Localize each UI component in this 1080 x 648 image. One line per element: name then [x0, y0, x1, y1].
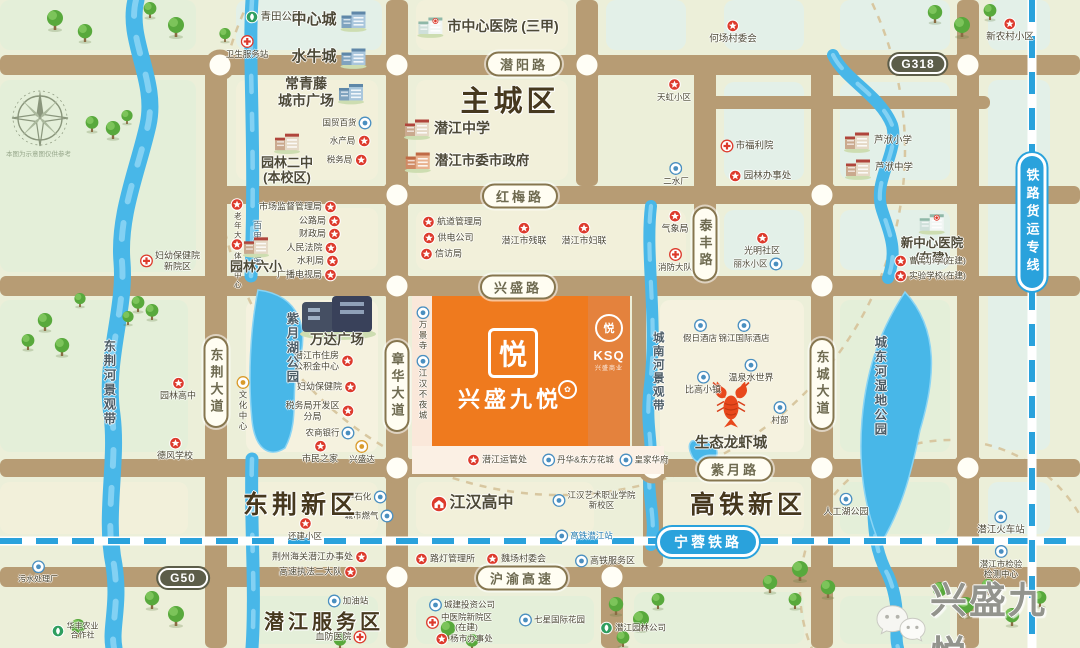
wanda-window	[340, 310, 364, 314]
poi-label-text: 园林办事处	[744, 170, 792, 181]
road-junction	[809, 182, 835, 208]
project-mini-seal-icon: ✿	[558, 380, 577, 399]
poi-label-text: 航道管理局	[437, 217, 482, 228]
poi-label-text: 温泉水世界	[728, 373, 773, 384]
road	[576, 0, 598, 186]
poi-label: 水利局	[297, 255, 339, 268]
poi-star-icon	[313, 440, 326, 453]
poi-label: 潜江园林公司	[600, 622, 666, 635]
poi-label: 园林六小	[230, 234, 282, 274]
poi-label: 潜江市住房公积金中心	[294, 350, 354, 371]
poi-label-text: 比高小镇	[685, 385, 721, 396]
poi-label-text: 城东河湿地公园	[872, 335, 887, 437]
poi-label: 江汉高中	[430, 495, 513, 514]
poi-blue-icon	[994, 510, 1007, 523]
park-icon	[246, 11, 259, 24]
poi-label: 城建投资公司	[429, 599, 495, 612]
park-icon	[600, 622, 613, 635]
map-disclaimer: 本图为示意图仅供参考	[6, 148, 106, 158]
poi-label: 潜江火车站	[977, 510, 1025, 535]
poi-label: 丹华&东方花城	[542, 454, 614, 467]
poi-star-icon	[341, 355, 354, 368]
road-junction	[599, 564, 625, 590]
city-block	[0, 0, 196, 50]
poi-label-text: 江汉不夜城	[418, 369, 428, 422]
school-building-icon	[843, 156, 873, 180]
poi-label-text: 园林六小	[230, 259, 282, 274]
road-junction	[384, 455, 410, 481]
poi-label: 市福利院	[720, 140, 773, 153]
poi-star-icon	[729, 170, 742, 183]
poi-label: 何场村委会	[709, 19, 757, 44]
poi-label-text: 芦洑小学	[874, 135, 912, 146]
poi-yellow-icon	[355, 440, 368, 453]
project-name-label: 兴盛九悦	[458, 382, 562, 414]
poi-star-icon	[354, 154, 367, 167]
poi-label: 芦洑中学	[843, 156, 913, 180]
wechat-icon	[876, 601, 926, 647]
tree-icon	[168, 606, 184, 628]
poi-label-text: 市中心医院 (三甲)	[447, 18, 558, 35]
poi-label: 潜江市妇联	[561, 222, 606, 247]
poi-label: 实验学校(在建)	[894, 270, 966, 283]
poi-label-text: 光明社区	[744, 246, 780, 257]
poi-blue-icon	[575, 555, 588, 568]
city-block	[606, 0, 686, 50]
poi-label-text: 高速执法二大队	[279, 567, 342, 578]
road-junction	[809, 455, 835, 481]
poi-label-text: 潜江园林公司	[615, 623, 666, 633]
poi-label: 园林二中(本校区)	[261, 130, 313, 186]
poi-label-text: 污水处理厂	[18, 574, 58, 583]
poi-label-text: 常青藤城市广场	[278, 75, 334, 108]
poi-star-icon	[357, 135, 370, 148]
road-name-capsule: 章华大道	[385, 340, 410, 432]
poi-label-text: 曹禺小学(在建)	[909, 256, 966, 266]
poi-label-text: 高铁潜江站	[570, 531, 613, 541]
poi-star-icon	[1003, 17, 1016, 30]
poi-label-text: 万景寺	[418, 320, 428, 352]
poi-star-icon	[726, 19, 739, 32]
poi-star-icon	[517, 222, 530, 235]
poi-label-text: 潜江市委市政府	[435, 153, 530, 169]
poi-label-text: 生态龙虾城	[695, 435, 768, 452]
poi-label: 锦江国际酒店	[718, 319, 769, 343]
poi-label-text: 税务局开发区分局	[285, 400, 339, 421]
poi-star-icon	[486, 553, 499, 566]
hospital-building-icon	[415, 14, 445, 38]
district-label: 潜江服务区	[264, 606, 384, 635]
poi-label-text: 皇家华府	[634, 455, 668, 465]
road-name-capsule: 紫月路	[697, 457, 773, 482]
brand-circle-icon: 悦	[595, 314, 623, 342]
poi-label: 光明社区	[744, 232, 780, 257]
poi-label: 江汉不夜城	[417, 355, 430, 422]
poi-label-text: 水牛城	[291, 48, 336, 66]
poi-label-text: 信访局	[435, 249, 462, 260]
poi-label: 比高小镇	[685, 371, 721, 396]
hospital-cross-icon	[720, 140, 733, 153]
poi-label: 税务局	[327, 154, 368, 167]
poi-blue-icon	[693, 319, 706, 332]
poi-star-icon	[171, 377, 184, 390]
poi-label-text: 供电公司	[437, 233, 473, 244]
poi-star-icon	[326, 255, 339, 268]
poi-label: 兴盛达	[349, 440, 375, 464]
poi-blue-icon	[669, 162, 682, 175]
poi-label-text: 假日酒店	[683, 333, 717, 343]
poi-label-text: 高铁服务区	[590, 556, 635, 567]
poi-label: 城东河湿地公园	[872, 335, 887, 437]
school-building-icon	[402, 116, 432, 140]
road-junction	[574, 52, 600, 78]
poi-star-icon	[755, 232, 768, 245]
road-name-capsule: 红梅路	[482, 184, 558, 209]
poi-label: 东荆河景观带	[101, 340, 116, 427]
poi-label: 供电公司	[422, 232, 473, 245]
poi-label: 二水厂	[663, 162, 689, 186]
compass-icon	[8, 86, 72, 155]
poi-label: 水产局	[330, 135, 371, 148]
poi-blue-icon	[744, 359, 757, 372]
government-building-icon	[403, 149, 433, 173]
poi-label-text: 广播电视局	[277, 270, 322, 281]
poi-label-text: 消防大队	[658, 262, 692, 272]
poi-label: 华丰农业合作社	[52, 622, 99, 641]
poi-blue-icon	[552, 494, 565, 507]
poi-star-icon	[324, 269, 337, 282]
poi-star-icon	[342, 405, 355, 418]
poi-label: 信访局	[420, 248, 462, 261]
road-junction	[384, 273, 410, 299]
poi-label: 市中心医院 (三甲)	[415, 14, 558, 38]
poi-label-text: 华丰农业合作社	[67, 622, 99, 641]
poi-label: 潜江市委市政府	[403, 149, 530, 173]
poi-star-icon	[168, 437, 181, 450]
poi-label-text: 市福利院	[735, 140, 773, 151]
poi-label: 中医院新院区(在建)	[426, 612, 492, 632]
building-icon	[336, 80, 366, 104]
poi-label: 皇家华府	[619, 454, 668, 467]
poi-label: 万达广场	[310, 332, 364, 348]
district-label: 主城区	[460, 78, 559, 120]
poi-label: 高铁服务区	[575, 555, 635, 568]
poi-label-text: 东荆河景观带	[101, 340, 116, 427]
poi-blue-icon	[359, 117, 372, 130]
poi-label: 气象局	[661, 210, 688, 235]
poi-star-icon	[344, 381, 357, 394]
poi-label: 新农村小区	[986, 17, 1034, 42]
poi-label-text: 潜江运管处	[482, 455, 527, 466]
poi-label-text: 园林高中	[160, 391, 196, 402]
railway-name-badge: 宁蓉铁路	[657, 527, 759, 557]
poi-label-text: 潜江中学	[434, 120, 490, 137]
poi-star-icon	[328, 215, 341, 228]
railway-freight-label: 铁路货运专线	[1018, 153, 1047, 291]
poi-blue-icon	[417, 355, 430, 368]
brand-sub-label: 兴盛商业	[595, 363, 623, 372]
poi-label-text: 妇幼保健院	[297, 382, 342, 393]
wanda-window	[308, 316, 320, 320]
poi-label-text: 天虹小区	[657, 92, 691, 102]
poi-label-text: 芦洑中学	[875, 162, 913, 173]
poi-label: 园林办事处	[729, 170, 792, 183]
school-icon	[430, 496, 447, 513]
poi-blue-icon	[32, 560, 45, 573]
poi-label-text: 潜江市残联	[501, 236, 546, 247]
park-icon	[52, 625, 65, 638]
watermark-text: 兴盛九悦	[930, 570, 1080, 648]
road-junction	[384, 182, 410, 208]
poi-star-icon	[422, 216, 435, 229]
poi-label: 农商银行	[305, 427, 354, 440]
poi-yellow-icon	[237, 376, 250, 389]
road-junction	[384, 52, 410, 78]
poi-label: 荆州海关潜江办事处	[272, 551, 368, 564]
hospital-cross-icon	[426, 616, 439, 629]
poi-star-icon	[894, 255, 907, 268]
poi-label: 丽水小区	[733, 258, 782, 271]
poi-label: 德风学校	[157, 437, 193, 462]
poi-label-text: 万达广场	[310, 332, 364, 348]
road-name-capsule: 东城大道	[810, 338, 835, 430]
poi-label-text: 水产局	[330, 136, 356, 146]
poi-label: 天虹小区	[657, 78, 691, 102]
hospital-building-icon	[917, 211, 947, 235]
poi-label-text: 城南河景观带	[650, 332, 664, 413]
highway-badge: G318	[889, 54, 946, 74]
poi-label-text: 丹华&东方花城	[557, 455, 614, 465]
road-name-capsule: 泰丰路	[693, 207, 718, 282]
city-block	[0, 482, 188, 534]
poi-label-text: 公路局	[299, 216, 326, 227]
poi-label-text: 七星国际花园	[534, 615, 585, 625]
poi-label-text: 妇幼保健院新院区	[155, 250, 200, 271]
poi-label: 人民法院	[286, 242, 337, 255]
poi-label: 万景寺	[417, 306, 430, 352]
building-icon	[339, 45, 369, 69]
poi-label-text: 城建投资公司	[444, 600, 495, 610]
poi-label-text: 卫生服务站	[226, 49, 269, 59]
poi-label: 曹禺小学(在建)	[894, 255, 966, 268]
poi-label: 园林高中	[160, 377, 196, 402]
poi-label-text: 潜江火车站	[977, 524, 1025, 535]
poi-label-text: 荆州海关潜江办事处	[272, 552, 353, 563]
brand-watermark: 兴盛九悦	[876, 570, 1080, 648]
poi-label-text: 江汉艺术职业学院新校区	[567, 490, 635, 510]
road-junction	[384, 564, 410, 590]
poi-label-text: 魏场村委会	[501, 554, 546, 565]
poi-blue-icon	[342, 427, 355, 440]
poi-blue-icon	[737, 319, 750, 332]
poi-blue-icon	[417, 306, 430, 319]
district-label: 高铁新区	[690, 485, 806, 521]
poi-label-text: 市民之家	[302, 454, 338, 465]
poi-label-text: 新农村小区	[986, 31, 1034, 42]
poi-star-icon	[668, 210, 681, 223]
poi-label: 潜江运管处	[467, 454, 527, 467]
poi-star-icon	[415, 553, 428, 566]
poi-star-icon	[325, 242, 338, 255]
road-name-capsule: 沪渝高速	[476, 566, 568, 591]
wanda-window	[340, 302, 364, 306]
poi-label-text: 气象局	[661, 224, 688, 235]
poi-label-text: 杨市办事处	[450, 634, 493, 644]
poi-label: 文化中心	[237, 376, 250, 432]
poi-label-text: 市场监督管理局	[259, 202, 322, 213]
poi-blue-icon	[381, 510, 394, 523]
poi-label-text: 二水厂	[663, 176, 689, 186]
poi-label-text: 农商银行	[305, 428, 339, 438]
poi-label: 市民之家	[302, 440, 338, 465]
hospital-cross-icon	[668, 248, 681, 261]
road	[386, 0, 408, 648]
poi-star-icon	[422, 232, 435, 245]
road-name-capsule: 潜阳路	[486, 52, 562, 77]
poi-label-text: 紫月湖公园	[284, 312, 299, 385]
road-junction	[955, 52, 981, 78]
poi-blue-icon	[429, 599, 442, 612]
highway-badge: G50	[158, 568, 208, 588]
poi-label: 七星国际花园	[519, 614, 585, 627]
poi-label: 卫生服务站	[226, 35, 269, 59]
poi-label-text: 人民法院	[286, 243, 322, 254]
poi-label: 温泉水世界	[728, 359, 773, 384]
tree-icon	[763, 575, 777, 595]
poi-label: 广播电视局	[277, 269, 337, 282]
poi-label: 高速执法二大队	[279, 566, 357, 579]
poi-star-icon	[344, 566, 357, 579]
hospital-cross-icon	[240, 35, 253, 48]
poi-blue-icon	[696, 371, 709, 384]
poi-label-text: 潜江市妇联	[561, 236, 606, 247]
poi-label: 江汉艺术职业学院新校区	[552, 490, 635, 510]
poi-blue-icon	[770, 258, 783, 271]
poi-label: 城南河景观带	[650, 332, 664, 413]
poi-label-text: 路灯管理所	[430, 554, 475, 565]
poi-label: 魏场村委会	[486, 553, 546, 566]
poi-label: 假日酒店	[683, 319, 717, 343]
poi-label: 常青藤城市广场	[278, 75, 366, 108]
poi-label: 紫月湖公园	[284, 312, 299, 385]
poi-label-text: 中心城	[291, 11, 336, 29]
poi-label: 路灯管理所	[415, 553, 475, 566]
road-name-capsule: 东荆大道	[204, 336, 229, 428]
poi-label: 消防大队	[658, 248, 692, 272]
poi-star-icon	[435, 633, 448, 646]
brand-ksq-label: KSQ	[593, 348, 624, 363]
wanda-window	[308, 308, 320, 312]
poi-label-text: 水利局	[297, 256, 324, 267]
poi-label: 人工湖公园	[823, 493, 868, 518]
poi-label-text: 潜江市住房公积金中心	[294, 350, 339, 371]
poi-label-text: 税务局	[327, 155, 353, 165]
poi-label-text: 江汉高中	[449, 495, 513, 514]
hospital-cross-icon	[140, 255, 153, 268]
poi-label-text: 村部	[771, 415, 788, 425]
poi-label: 航道管理局	[422, 216, 482, 229]
poi-label: 国贸百货	[322, 117, 371, 130]
poi-label-text: 何场村委会	[709, 33, 757, 44]
poi-blue-icon	[555, 530, 568, 543]
road-name-capsule: 兴盛路	[480, 275, 556, 300]
poi-label: 污水处理厂	[18, 560, 58, 583]
poi-label-text: 文化中心	[238, 390, 248, 432]
poi-label: 税务局开发区分局	[285, 400, 354, 421]
road-junction	[955, 455, 981, 481]
project-logo-seal: 悦	[488, 328, 538, 378]
poi-star-icon	[355, 551, 368, 564]
poi-star-icon	[328, 228, 341, 241]
poi-label: 妇幼保健院	[297, 381, 357, 394]
poi-label: 公路局	[299, 215, 341, 228]
location-map: 悦 兴盛九悦 ✿ 悦 KSQ 兴盛商业 本图为示意图仅供参考	[0, 0, 1080, 648]
poi-blue-icon	[994, 545, 1007, 558]
poi-star-icon	[467, 454, 480, 467]
poi-label: 村部	[771, 401, 788, 425]
poi-label: 妇幼保健院新院区	[140, 250, 200, 271]
poi-label-text: 人工湖公园	[823, 507, 868, 518]
poi-label-text: 实验学校(在建)	[909, 271, 966, 281]
poi-label-text: 德风学校	[157, 451, 193, 462]
poi-label: 市场监督管理局	[259, 201, 337, 214]
road	[700, 96, 990, 109]
poi-blue-icon	[619, 454, 632, 467]
road	[957, 0, 979, 648]
poi-star-icon	[577, 222, 590, 235]
poi-star-icon	[894, 270, 907, 283]
poi-label-text: 财政局	[299, 229, 326, 240]
poi-label: 潜江市残联	[501, 222, 546, 247]
poi-star-icon	[231, 198, 244, 211]
poi-label-text: 中医院新院区(在建)	[441, 612, 492, 632]
poi-blue-icon	[519, 614, 532, 627]
poi-label: 杨市办事处	[435, 633, 493, 646]
poi-label-text: 兴盛达	[349, 454, 375, 464]
poi-blue-icon	[542, 454, 555, 467]
school-building-icon	[272, 130, 302, 154]
district-label: 东荆新区	[243, 485, 359, 521]
poi-blue-icon	[373, 491, 386, 504]
poi-label-text: 园林二中(本校区)	[261, 155, 313, 186]
poi-blue-icon	[773, 401, 786, 414]
poi-label: 中心城	[291, 8, 368, 32]
poi-label-text: 加油站	[343, 596, 369, 606]
poi-label-text: 锦江国际酒店	[718, 333, 769, 343]
poi-label-text: 丽水小区	[733, 259, 767, 269]
poi-star-icon	[667, 78, 680, 91]
poi-label: 水牛城	[291, 45, 368, 69]
poi-label: 芦洑小学	[842, 129, 912, 153]
building-icon	[339, 8, 369, 32]
poi-label: 生态龙虾城	[695, 435, 768, 452]
poi-blue-icon	[839, 493, 852, 506]
poi-label: 高铁潜江站	[555, 530, 613, 543]
poi-star-icon	[324, 201, 337, 214]
school-building-icon	[842, 129, 872, 153]
tree-icon	[145, 591, 159, 611]
road-junction	[809, 273, 835, 299]
poi-label-text: 国贸百货	[322, 118, 356, 128]
poi-label: 财政局	[299, 228, 341, 241]
poi-label-text: 还建小区	[288, 531, 322, 541]
commercial-brand-block: 悦 KSQ 兴盛商业	[588, 296, 630, 446]
school-building-icon	[241, 234, 271, 258]
poi-star-icon	[420, 248, 433, 261]
